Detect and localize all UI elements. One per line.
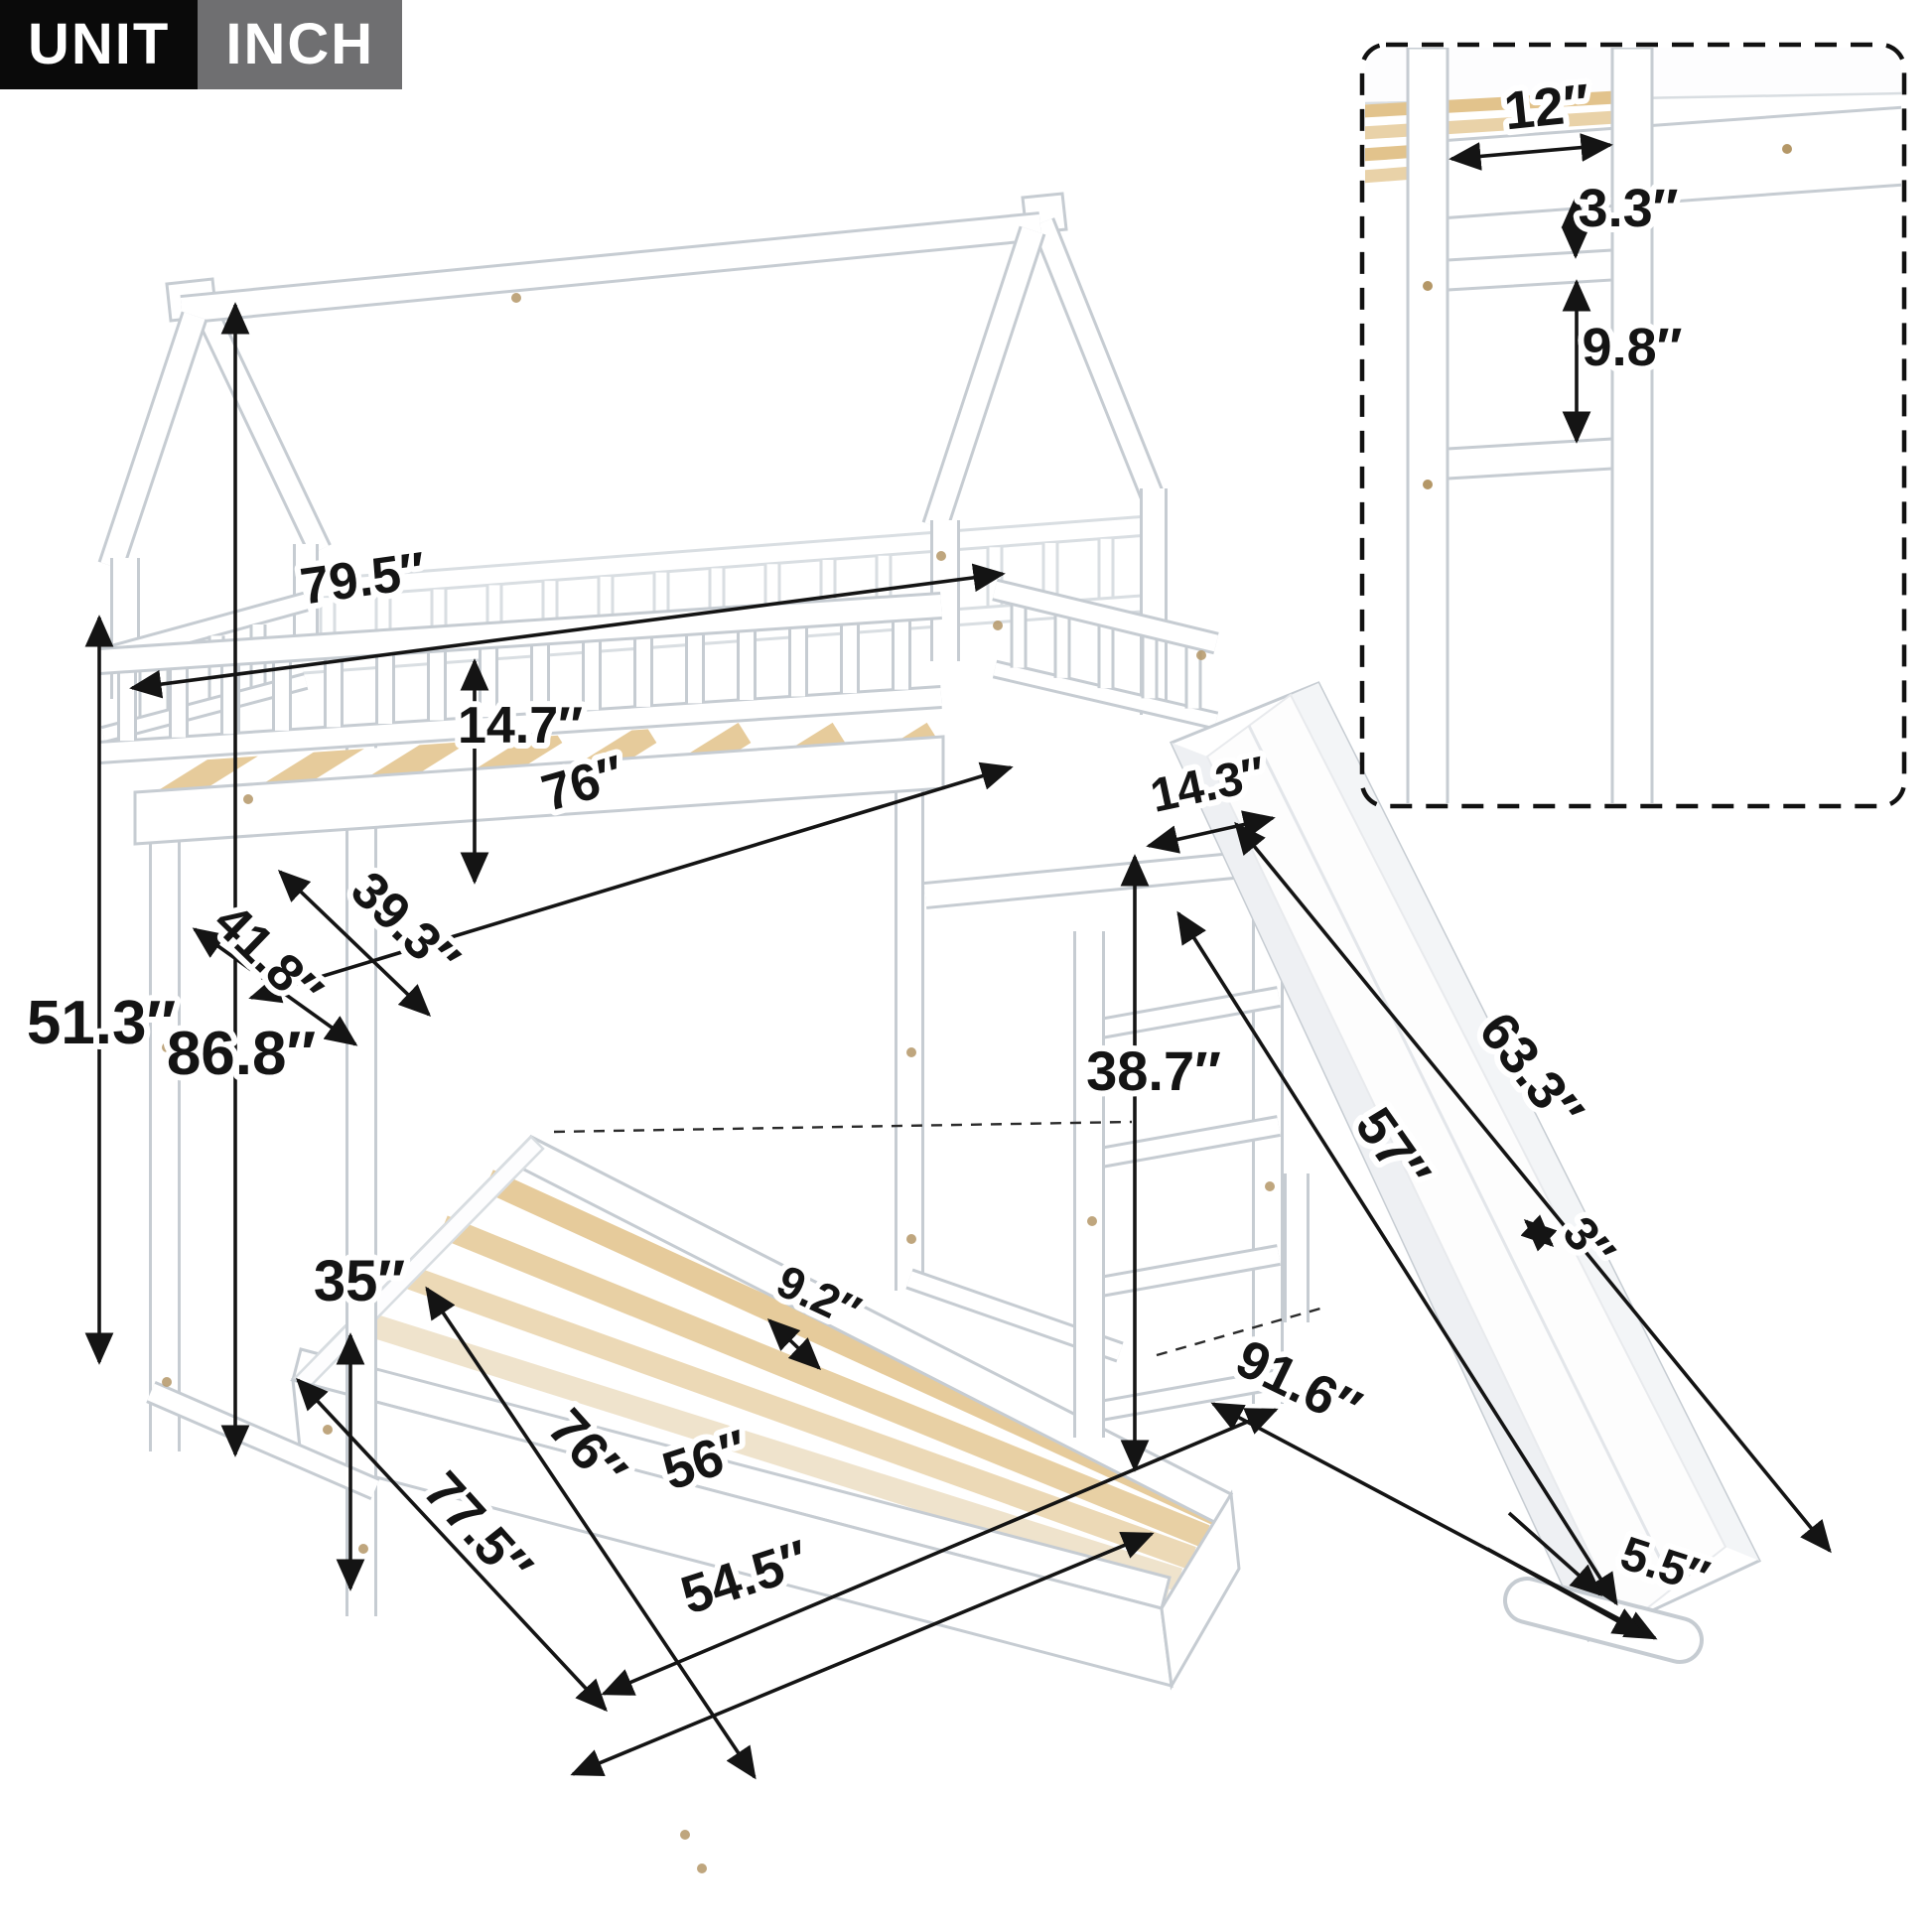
- inset-ladder-right-rail: [1612, 48, 1652, 806]
- inch-label: INCH: [198, 0, 402, 89]
- unit-badge: UNIT INCH: [0, 0, 402, 89]
- inset-rung-top: [1448, 250, 1612, 290]
- unit-label: UNIT: [0, 0, 198, 89]
- hidden-edge-dashed-line-2: [1157, 1309, 1320, 1355]
- inset-rung-bottom: [1448, 439, 1612, 479]
- dim-label-rail-height: 14.7″: [458, 697, 583, 755]
- inset-ladder-left-rail: [1408, 48, 1448, 806]
- dim-label-rung-gap: 9.8″: [1583, 318, 1683, 377]
- hidden-edge-dashed-line: [554, 1122, 1132, 1132]
- ladder-detail-inset: [1362, 45, 1904, 806]
- right-headboard: [995, 590, 1216, 721]
- dim-label-total-height: 86.8″: [167, 1020, 316, 1088]
- dim-label-rung-gap-top: 3.3″: [1579, 179, 1679, 238]
- diagram-canvas: 79.5″ 14.7″ 76″ 39.3″ 41.8″ 51.3″ 86.8″ …: [0, 0, 1932, 1932]
- dim-label-under-bunk-height: 38.7″: [1086, 1039, 1221, 1102]
- dim-label-lower-clearance: 35″: [314, 1249, 405, 1313]
- dim-label-upper-outer-width: 41.8″: [203, 893, 333, 1021]
- dim-label-left-height: 51.3″: [27, 989, 176, 1057]
- product-dimension-diagram: UNIT INCH: [0, 0, 1932, 1932]
- dim-label-ladder-width: 12″: [1501, 73, 1592, 142]
- inset-content: [1362, 46, 1904, 806]
